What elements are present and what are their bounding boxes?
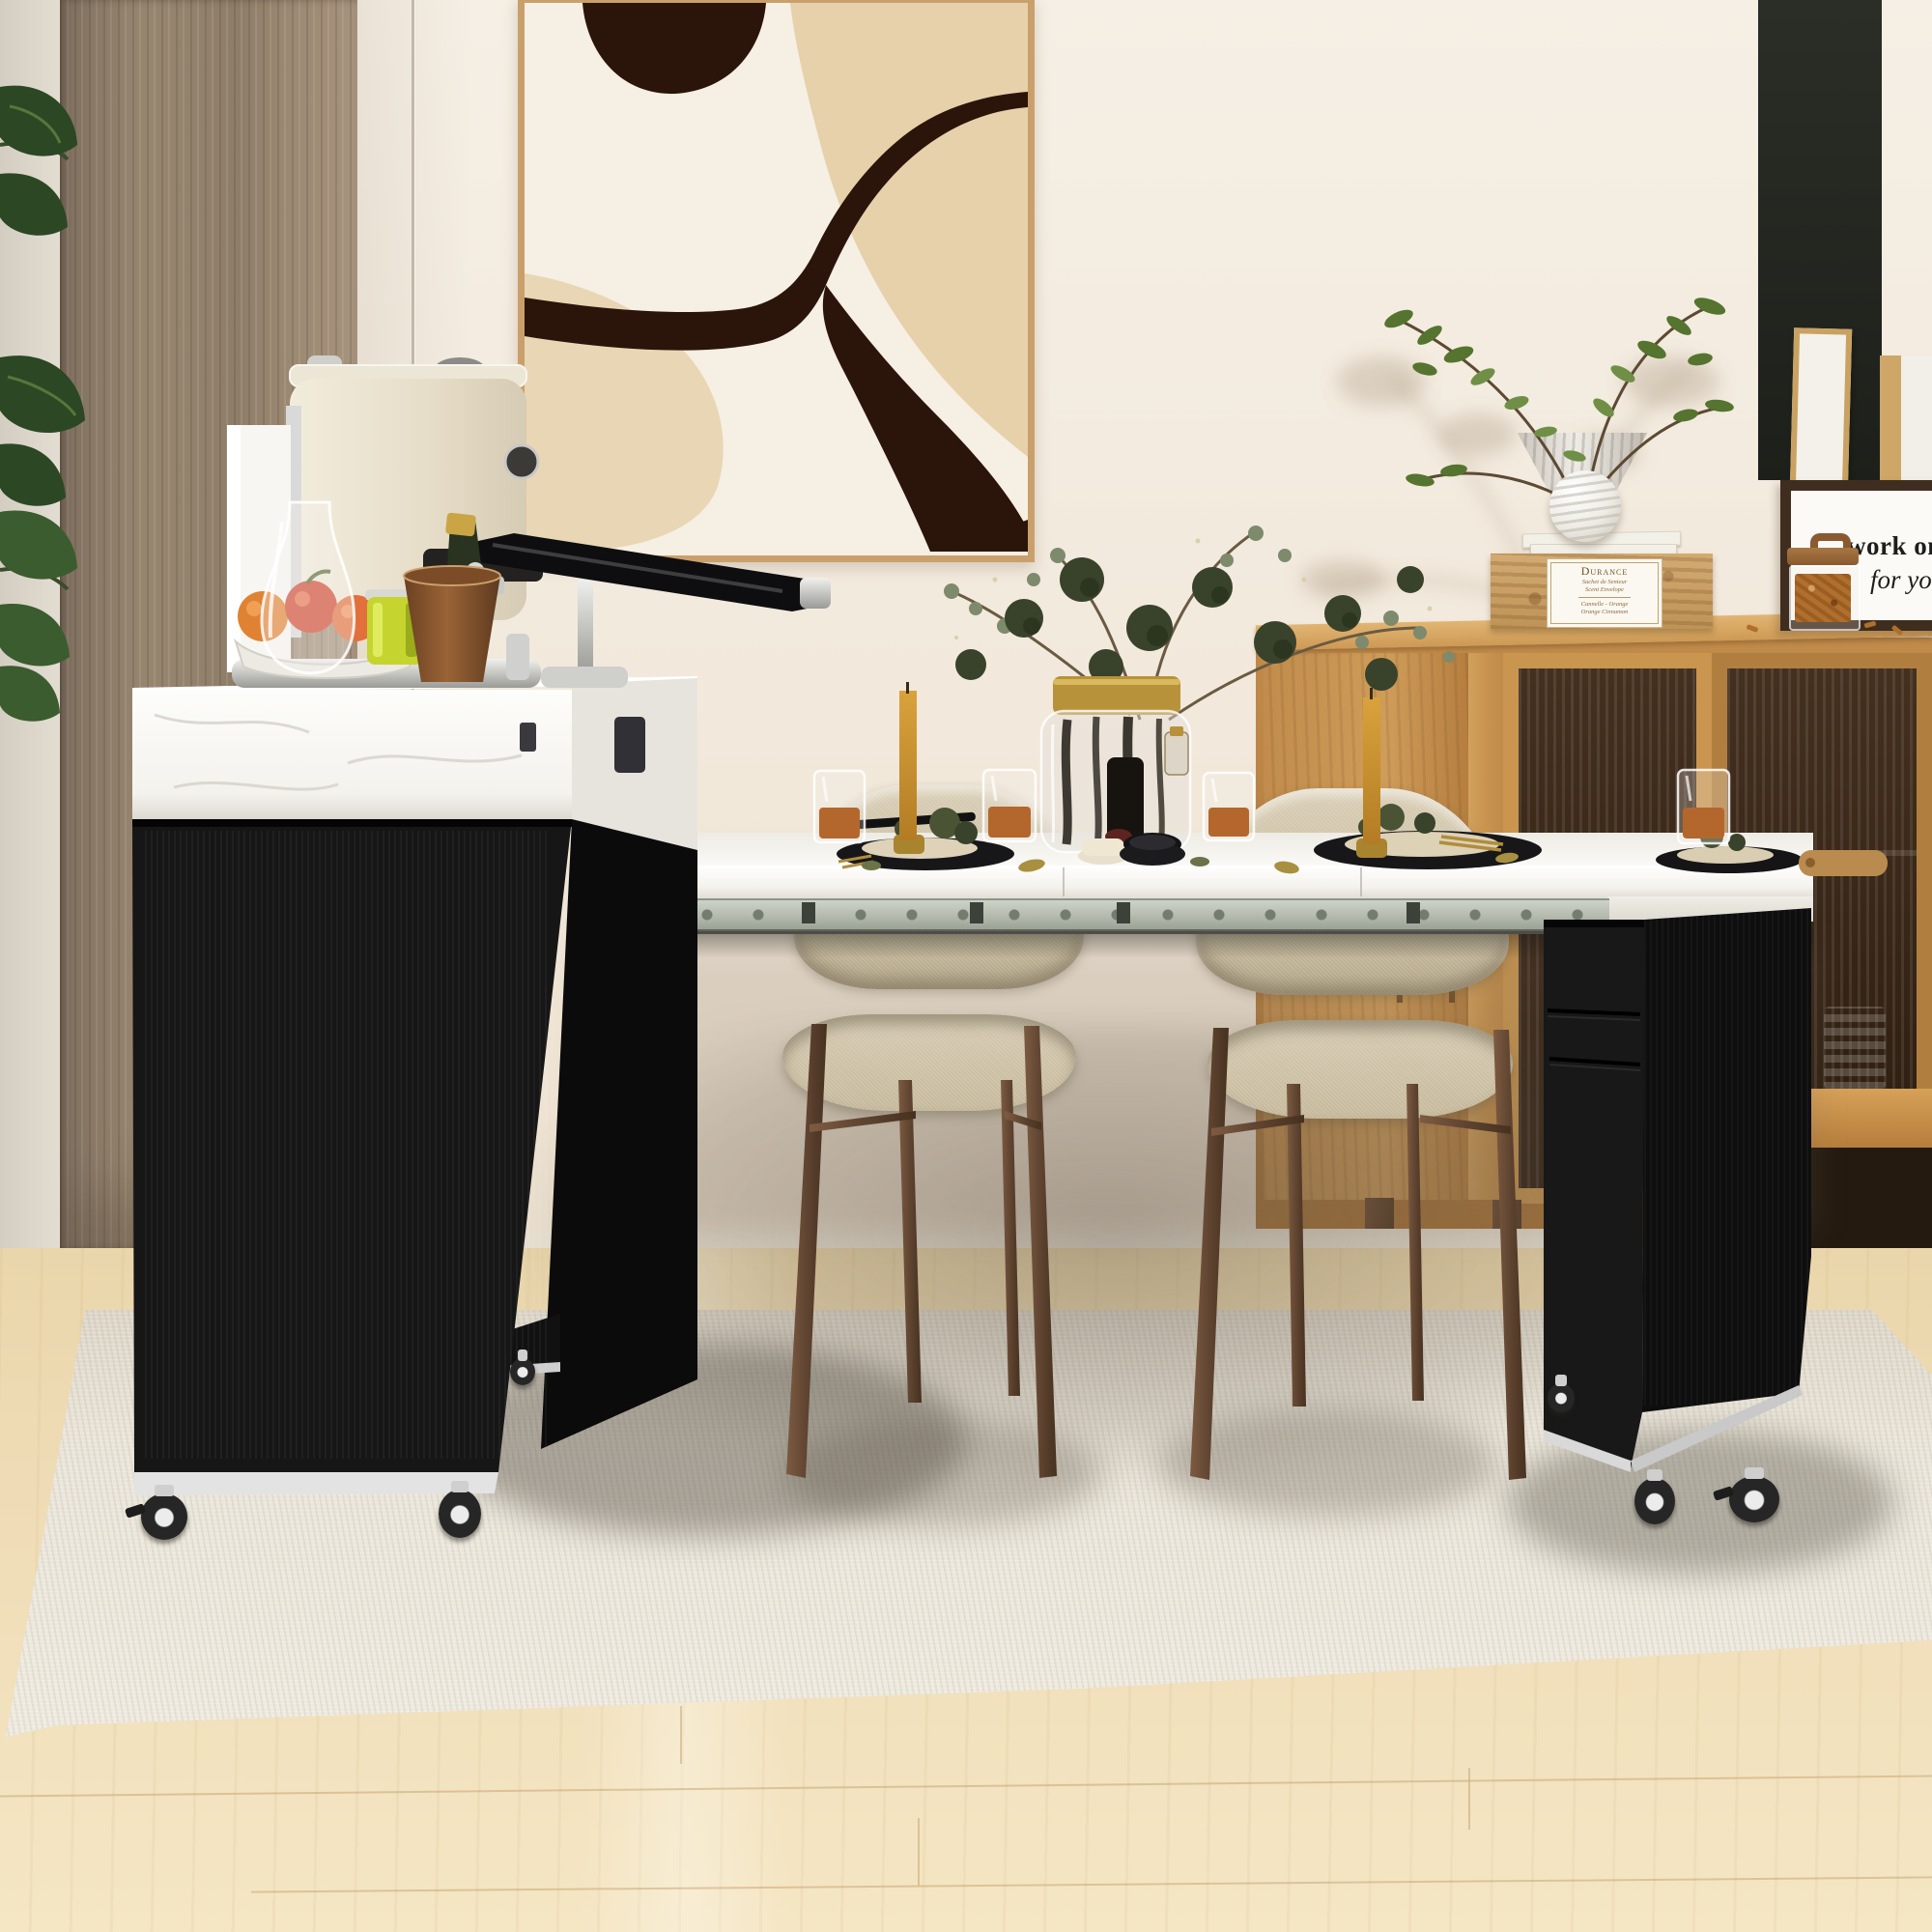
coffee-station xyxy=(116,261,869,705)
caster-wheel xyxy=(1548,1383,1575,1412)
dark-bottle xyxy=(1107,757,1144,842)
caster-wheel-brake xyxy=(141,1493,187,1540)
dried-bouquet xyxy=(944,526,1455,720)
floor-plank-joint xyxy=(918,1818,920,1886)
rail-latch xyxy=(802,902,815,923)
caster-wheel-brake xyxy=(1729,1476,1779,1522)
corner-plant xyxy=(0,29,145,744)
plate-stack-silhouette xyxy=(1824,1007,1886,1090)
rail-latch xyxy=(1406,902,1420,923)
chair-legs xyxy=(753,1005,1565,1507)
sideboard-bottom-rail xyxy=(1811,1089,1932,1151)
cabinet-grain xyxy=(1644,908,1811,1406)
island-grain xyxy=(145,831,551,1459)
floor-plank-joint xyxy=(1468,1768,1470,1830)
dining-room-photo: Durance Sachet de Senteur Scent Envelope… xyxy=(0,0,1932,1932)
caster-wheel xyxy=(439,1490,481,1538)
shaker xyxy=(506,634,529,680)
floor-plank-joint xyxy=(680,1706,682,1764)
caster-wheel xyxy=(510,1358,535,1385)
rail-latch xyxy=(1117,902,1130,923)
small-bottle xyxy=(1165,732,1188,775)
caster-wheel xyxy=(1634,1478,1675,1524)
rail-latch xyxy=(970,902,983,923)
